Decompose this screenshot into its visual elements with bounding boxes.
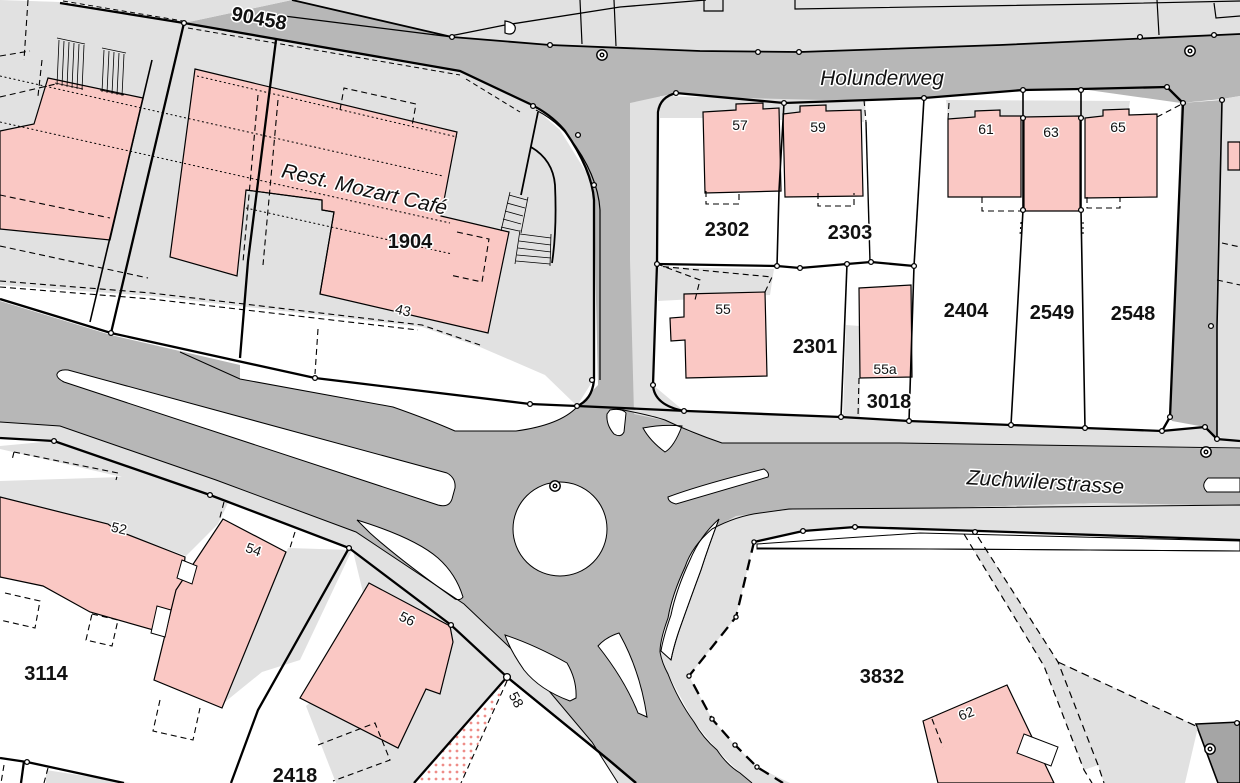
svg-text:57: 57 [732, 117, 748, 133]
svg-text:59: 59 [810, 119, 826, 135]
svg-text:55a: 55a [873, 361, 897, 377]
svg-text:Holunderweg: Holunderweg [820, 67, 944, 90]
svg-text:2404: 2404 [944, 300, 989, 322]
svg-text:2301: 2301 [793, 336, 838, 358]
svg-text:65: 65 [1110, 119, 1126, 135]
svg-text:63: 63 [1043, 124, 1059, 140]
svg-text:3114: 3114 [24, 663, 68, 685]
svg-text:3832: 3832 [860, 666, 905, 688]
svg-text:2303: 2303 [828, 222, 873, 244]
svg-text:3018: 3018 [867, 391, 912, 413]
svg-text:2302: 2302 [705, 219, 750, 241]
svg-text:1904: 1904 [388, 231, 433, 253]
svg-text:61: 61 [978, 121, 994, 137]
svg-text:2418: 2418 [273, 765, 318, 783]
svg-text:55: 55 [715, 301, 731, 317]
svg-text:2548: 2548 [1111, 303, 1156, 325]
svg-text:2549: 2549 [1030, 302, 1075, 324]
